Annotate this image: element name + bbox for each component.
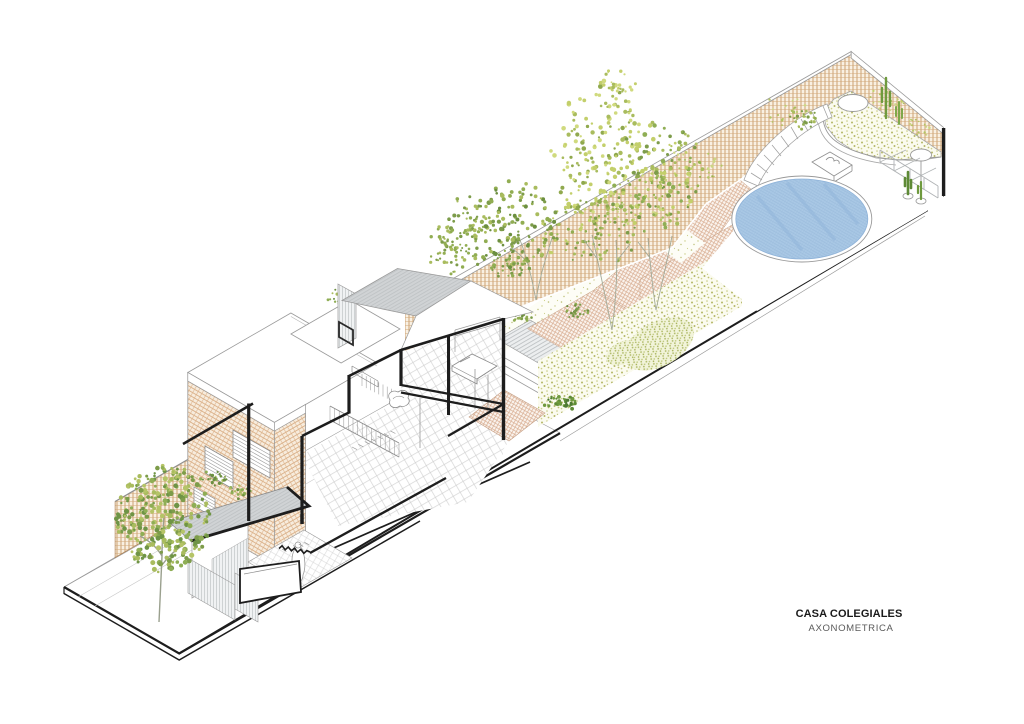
svg-text:AXONOMETRICA: AXONOMETRICA [808,623,893,634]
svg-text:CASA COLEGIALES: CASA COLEGIALES [796,608,903,620]
